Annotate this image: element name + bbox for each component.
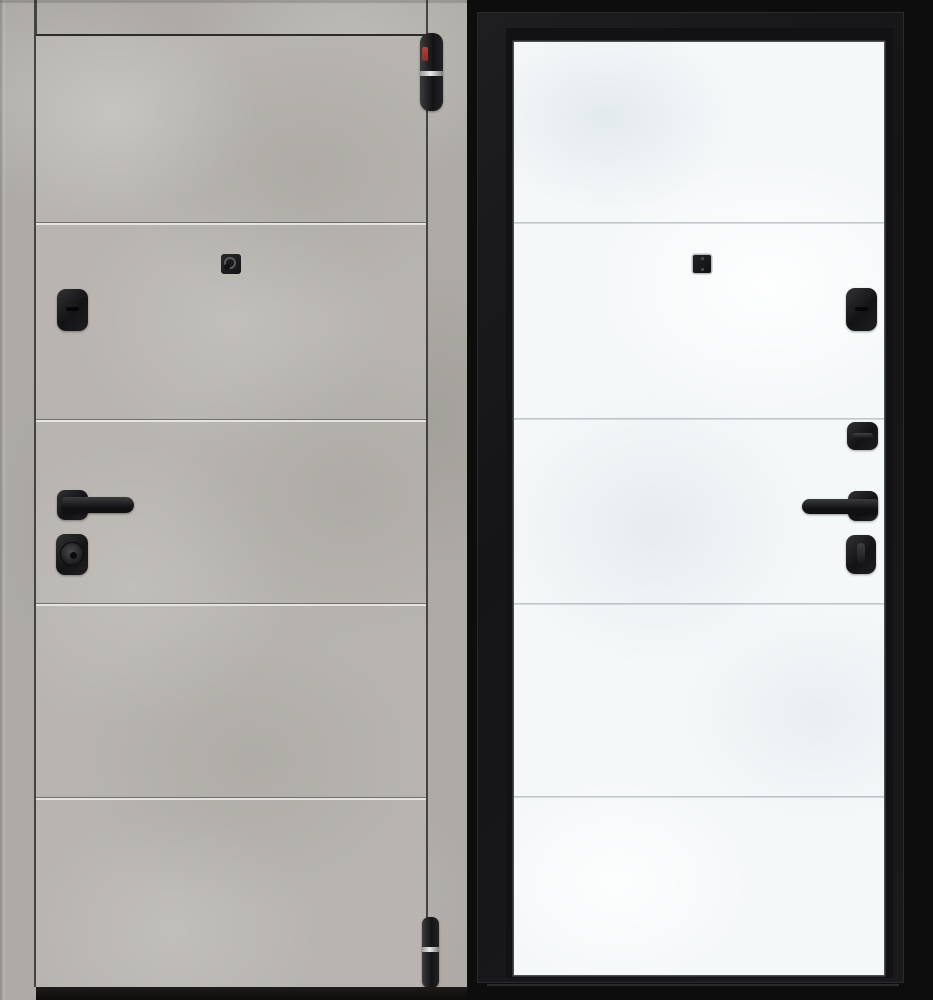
panel-groove bbox=[514, 222, 884, 224]
panel-groove bbox=[514, 796, 884, 798]
keyhole-escutcheon bbox=[57, 289, 88, 331]
lock-plate bbox=[693, 255, 711, 273]
threshold-shadow bbox=[36, 987, 467, 1000]
lever-handle bbox=[62, 497, 134, 513]
panel-groove bbox=[36, 222, 426, 225]
door-product-photo bbox=[0, 0, 933, 1000]
panel-groove bbox=[36, 797, 426, 800]
panel-groove bbox=[514, 603, 884, 605]
thumbturn-knob bbox=[852, 433, 873, 439]
cylinder-knob bbox=[56, 534, 88, 575]
panel-groove bbox=[36, 603, 426, 606]
door-outside-view[interactable] bbox=[0, 0, 467, 1000]
panel-groove bbox=[514, 418, 884, 420]
keyhole-slit bbox=[66, 307, 79, 311]
hinge-ring bbox=[422, 947, 439, 952]
keyhole-slit bbox=[855, 307, 868, 311]
thumbturn-knob bbox=[857, 543, 865, 567]
top-hinge bbox=[420, 33, 443, 111]
knob-disc bbox=[60, 542, 84, 566]
keyhole-escutcheon bbox=[846, 288, 877, 331]
door-inside-view[interactable] bbox=[467, 0, 933, 1000]
panel-groove bbox=[36, 419, 426, 422]
peephole bbox=[221, 254, 241, 274]
bottom-hinge bbox=[422, 917, 439, 988]
night-latch-thumbturn bbox=[846, 535, 876, 574]
frame-bevel bbox=[487, 984, 899, 986]
hinge-ring bbox=[420, 71, 443, 76]
lever-handle bbox=[802, 499, 878, 514]
hinge-brand-label bbox=[422, 47, 428, 61]
deadbolt-thumbturn bbox=[847, 422, 878, 450]
casing-top-edge bbox=[0, 0, 467, 3]
